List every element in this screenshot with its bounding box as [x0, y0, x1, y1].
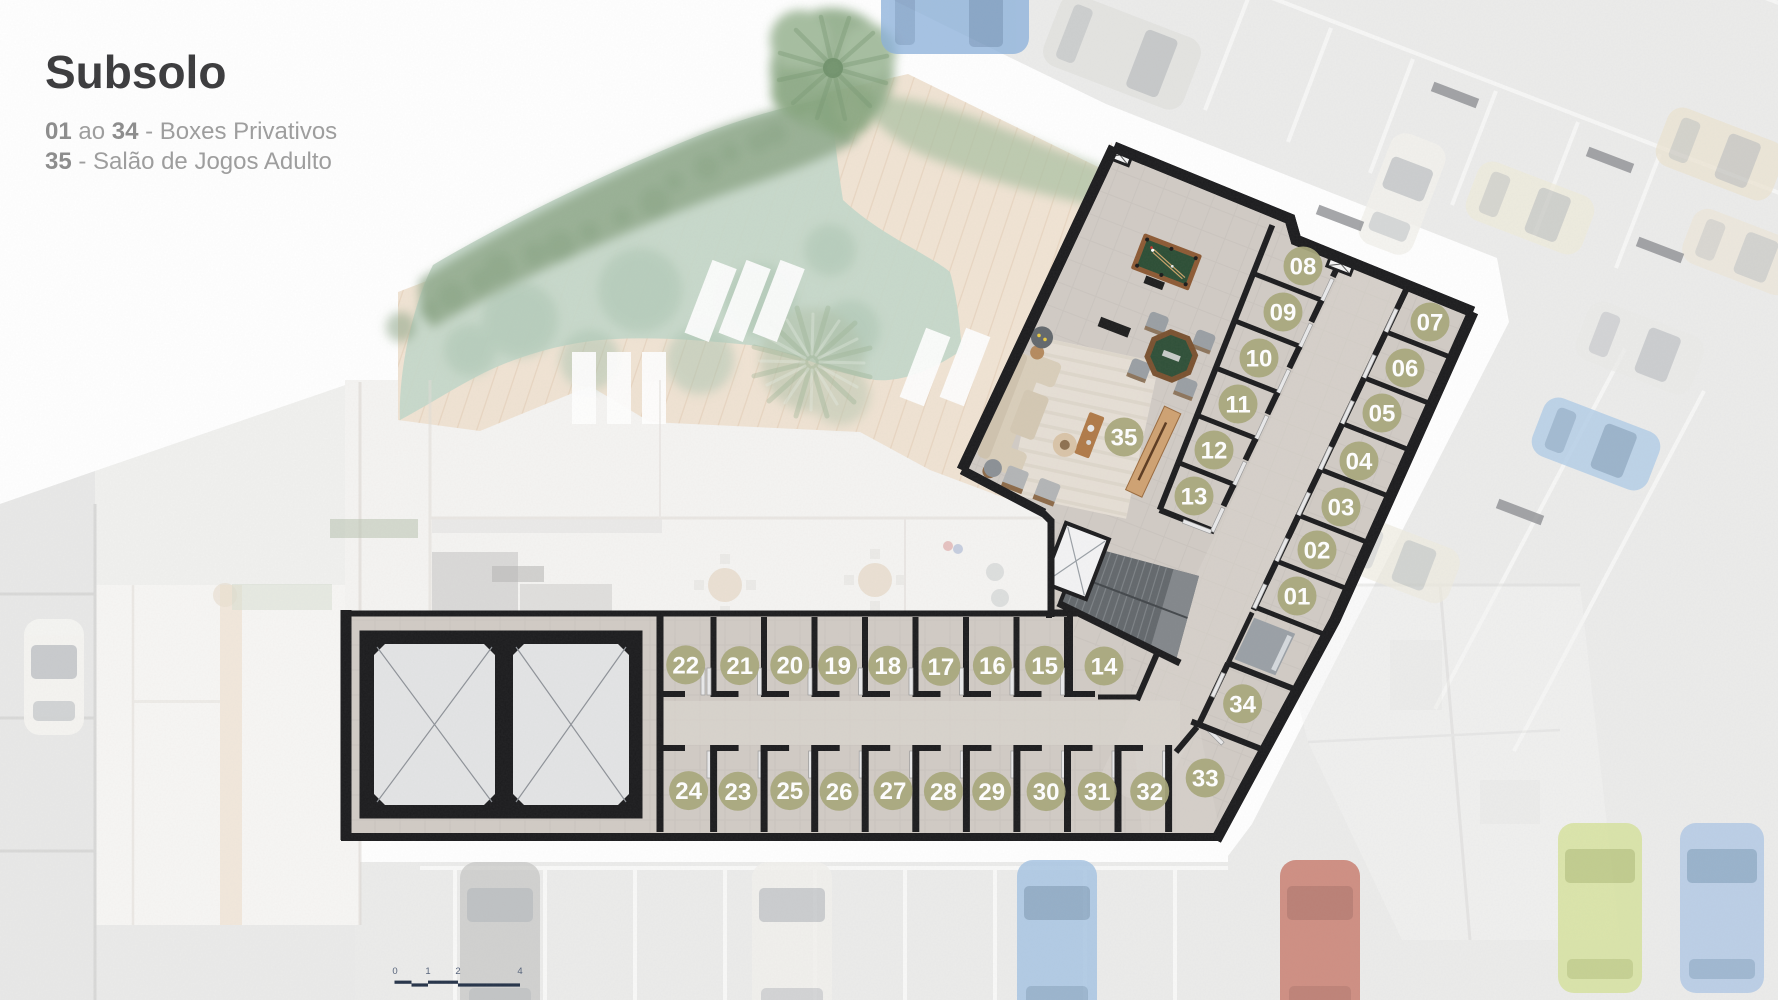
svg-text:14: 14: [1091, 654, 1118, 681]
svg-text:1: 1: [425, 966, 430, 977]
svg-text:04: 04: [1346, 449, 1373, 476]
svg-text:30: 30: [1033, 779, 1060, 806]
svg-text:21: 21: [726, 653, 753, 680]
svg-text:4: 4: [517, 966, 522, 977]
svg-text:Subsolo: Subsolo: [45, 46, 226, 98]
svg-text:34: 34: [1229, 691, 1256, 718]
svg-text:03: 03: [1328, 495, 1355, 522]
svg-text:35: 35: [1111, 425, 1138, 452]
svg-text:12: 12: [1201, 438, 1228, 465]
svg-text:35 - Salão de Jogos Adulto: 35 - Salão de Jogos Adulto: [45, 148, 332, 175]
svg-text:31: 31: [1084, 779, 1111, 806]
svg-text:10: 10: [1246, 346, 1273, 373]
svg-text:17: 17: [928, 654, 955, 681]
svg-text:05: 05: [1369, 401, 1396, 428]
svg-text:02: 02: [1304, 538, 1331, 565]
svg-text:28: 28: [930, 779, 957, 806]
svg-text:19: 19: [824, 653, 851, 680]
svg-text:01: 01: [1284, 584, 1311, 611]
svg-text:26: 26: [826, 779, 853, 806]
svg-text:15: 15: [1031, 653, 1058, 680]
svg-text:24: 24: [675, 778, 702, 805]
svg-text:07: 07: [1417, 310, 1444, 337]
svg-text:22: 22: [672, 652, 699, 679]
svg-text:09: 09: [1270, 300, 1297, 327]
svg-text:33: 33: [1192, 766, 1219, 793]
svg-text:25: 25: [776, 778, 803, 805]
svg-text:01 ao 34 - Boxes Privativos: 01 ao 34 - Boxes Privativos: [45, 118, 337, 145]
svg-text:23: 23: [725, 779, 752, 806]
svg-text:18: 18: [874, 653, 901, 680]
svg-text:29: 29: [978, 779, 1005, 806]
svg-text:2: 2: [455, 966, 460, 977]
svg-text:27: 27: [880, 778, 907, 805]
svg-text:08: 08: [1290, 254, 1317, 281]
svg-text:06: 06: [1392, 356, 1419, 383]
svg-text:20: 20: [776, 653, 803, 680]
svg-text:32: 32: [1136, 779, 1163, 806]
svg-text:11: 11: [1225, 392, 1250, 419]
svg-text:16: 16: [979, 653, 1006, 680]
svg-text:13: 13: [1181, 484, 1208, 511]
svg-text:0: 0: [392, 966, 397, 977]
